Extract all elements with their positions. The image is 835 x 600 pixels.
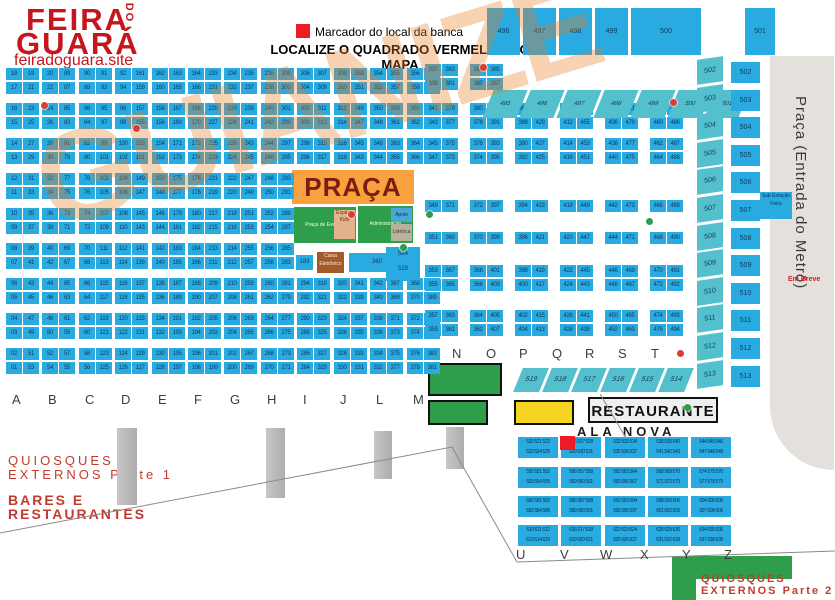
stall-460: 460 bbox=[650, 117, 666, 129]
stall-56: 56 bbox=[79, 362, 95, 374]
stall-318: 318 bbox=[334, 152, 350, 164]
stall-372: 372 bbox=[407, 313, 423, 325]
stall-331: 331 bbox=[351, 362, 367, 374]
stall-241: 241 bbox=[241, 117, 257, 129]
stall-449: 449 bbox=[577, 200, 593, 212]
stall-503: 503 bbox=[731, 90, 760, 111]
stall-104: 104 bbox=[115, 173, 131, 185]
stall-258: 258 bbox=[261, 257, 277, 269]
ala-nova-box: 544 545 546547 548 549 bbox=[691, 437, 731, 458]
stall-08: 08 bbox=[6, 243, 22, 255]
stall-471: 471 bbox=[622, 232, 638, 244]
pillar bbox=[446, 427, 464, 469]
stall-319: 319 bbox=[314, 278, 330, 290]
stall-203: 203 bbox=[205, 327, 221, 339]
stall-294: 294 bbox=[297, 278, 313, 290]
ala-nova-box-line: 631 632 633 bbox=[648, 535, 688, 545]
substation-box: Sub Estação Feira bbox=[760, 192, 792, 219]
stall-374: 374 bbox=[407, 327, 423, 339]
ala-nova-box: 532 533 534535 536 537 bbox=[605, 437, 645, 458]
column-letter-O: O bbox=[486, 346, 496, 361]
stall-49: 49 bbox=[23, 327, 39, 339]
column-letter-B: B bbox=[48, 392, 57, 407]
stall-463: 463 bbox=[622, 324, 638, 336]
stall-02: 02 bbox=[6, 348, 22, 360]
stall-302: 302 bbox=[297, 103, 313, 115]
stall-181: 181 bbox=[169, 222, 185, 234]
ala-nova-box-line: 574 575 576 bbox=[691, 467, 731, 477]
stall-153: 153 bbox=[132, 138, 148, 150]
stall-99: 99 bbox=[96, 138, 112, 150]
stall-224: 224 bbox=[224, 152, 240, 164]
stall-496: 496 bbox=[487, 8, 520, 55]
stall-349: 349 bbox=[351, 103, 367, 115]
pillar bbox=[117, 428, 137, 505]
stall-118: 118 bbox=[115, 292, 131, 304]
stall-187: 187 bbox=[169, 278, 185, 290]
stall-76: 76 bbox=[79, 187, 95, 199]
ala-nova-box: 604 605 606607 608 609 bbox=[691, 496, 731, 517]
quiosques2-line1: QUIOSQUES bbox=[701, 573, 786, 585]
stall-451: 451 bbox=[577, 152, 593, 164]
ala-nova-box-line: 547 548 549 bbox=[691, 447, 731, 457]
stall-309: 309 bbox=[314, 82, 330, 94]
stall-329: 329 bbox=[314, 362, 330, 374]
stall-64: 64 bbox=[79, 292, 95, 304]
stall-73: 73 bbox=[59, 208, 75, 220]
stall-490: 490 bbox=[667, 232, 683, 244]
stall-243: 243 bbox=[241, 138, 257, 150]
stall-422: 422 bbox=[560, 265, 576, 277]
column-letter-Q: Q bbox=[552, 346, 562, 361]
stall-335: 335 bbox=[351, 327, 367, 339]
stall-308: 308 bbox=[334, 68, 350, 80]
stall-345: 345 bbox=[351, 138, 367, 150]
stall-53: 53 bbox=[23, 362, 39, 374]
stall-420: 420 bbox=[560, 232, 576, 244]
stall-387: 387 bbox=[487, 78, 503, 90]
stall-199: 199 bbox=[205, 362, 221, 374]
stall-363: 363 bbox=[442, 310, 458, 322]
stall-57: 57 bbox=[59, 348, 75, 360]
stall-256: 256 bbox=[261, 243, 277, 255]
stall-321: 321 bbox=[314, 292, 330, 304]
stall-237: 237 bbox=[241, 82, 257, 94]
stall-15: 15 bbox=[6, 117, 22, 129]
column-letter-V: V bbox=[560, 547, 569, 562]
stall-305: 305 bbox=[278, 68, 294, 80]
stall-508: 508 bbox=[731, 228, 760, 249]
stall-265: 265 bbox=[241, 327, 257, 339]
stall-286: 286 bbox=[297, 348, 313, 360]
column-letter-P: P bbox=[519, 346, 528, 361]
stall-19: 19 bbox=[23, 68, 39, 80]
stall-327: 327 bbox=[314, 348, 330, 360]
stall-310: 310 bbox=[334, 82, 350, 94]
stall-38: 38 bbox=[42, 222, 58, 234]
stall-175: 175 bbox=[169, 173, 185, 185]
stall-135: 135 bbox=[132, 292, 148, 304]
stall-150: 150 bbox=[152, 173, 168, 185]
stall-117: 117 bbox=[96, 292, 112, 304]
green-block-small bbox=[428, 400, 488, 425]
stall-54: 54 bbox=[42, 362, 58, 374]
column-letter-N: N bbox=[452, 346, 461, 361]
ala-nova-box: 592 593 594595 596 597 bbox=[605, 496, 645, 517]
ala-nova-box-line: 562 563 564 bbox=[605, 467, 645, 477]
stall-412: 412 bbox=[560, 117, 576, 129]
stall-269: 269 bbox=[241, 362, 257, 374]
stall-strip-510: 510 bbox=[697, 277, 723, 306]
stall-130: 130 bbox=[152, 348, 168, 360]
stall-165: 165 bbox=[169, 82, 185, 94]
bares-line2: RESTAURANTES bbox=[8, 506, 146, 522]
stall-299: 299 bbox=[278, 117, 294, 129]
stall-395: 395 bbox=[487, 152, 503, 164]
stall-04: 04 bbox=[6, 313, 22, 325]
ala-nova-box-line: 538 539 540 bbox=[648, 437, 688, 447]
stall-394: 394 bbox=[515, 200, 531, 212]
stall-391: 391 bbox=[487, 117, 503, 129]
stall-65: 65 bbox=[59, 278, 75, 290]
stall-102: 102 bbox=[115, 152, 131, 164]
stall-336: 336 bbox=[370, 327, 386, 339]
stall-361: 361 bbox=[387, 117, 403, 129]
stall-355: 355 bbox=[387, 68, 403, 80]
stall-423: 423 bbox=[532, 200, 548, 212]
stall-43: 43 bbox=[23, 278, 39, 290]
stall-138: 138 bbox=[152, 278, 168, 290]
stall-122: 122 bbox=[115, 327, 131, 339]
stall-205: 205 bbox=[205, 313, 221, 325]
stall-247: 247 bbox=[241, 173, 257, 185]
stall-05: 05 bbox=[6, 292, 22, 304]
stall-142: 142 bbox=[152, 243, 168, 255]
stall-366: 366 bbox=[407, 152, 423, 164]
stall-322: 322 bbox=[334, 292, 350, 304]
stall-208: 208 bbox=[224, 292, 240, 304]
stall-418: 418 bbox=[560, 200, 576, 212]
stall-470: 470 bbox=[650, 265, 666, 277]
stall-352: 352 bbox=[370, 82, 386, 94]
stall-238: 238 bbox=[261, 82, 277, 94]
stall-266: 266 bbox=[261, 327, 277, 339]
stall-448: 448 bbox=[605, 279, 621, 291]
stall-95: 95 bbox=[96, 103, 112, 115]
stall-207: 207 bbox=[205, 292, 221, 304]
stall-190: 190 bbox=[188, 292, 204, 304]
stall-497: 497 bbox=[523, 8, 556, 55]
column-letter-E: E bbox=[158, 392, 167, 407]
stall-311: 311 bbox=[314, 103, 330, 115]
ala-nova-box-line: 544 545 546 bbox=[691, 437, 731, 447]
ala-nova-box-line: 637 638 639 bbox=[691, 535, 731, 545]
stall-strip-502: 502 bbox=[697, 56, 723, 85]
stall-234: 234 bbox=[224, 68, 240, 80]
stall-160: 160 bbox=[152, 82, 168, 94]
stall-368: 368 bbox=[407, 278, 423, 290]
stall-356: 356 bbox=[407, 68, 423, 80]
stall-63: 63 bbox=[59, 292, 75, 304]
stall-46: 46 bbox=[42, 292, 58, 304]
column-letter-I: I bbox=[303, 392, 307, 407]
stall-01: 01 bbox=[6, 362, 22, 374]
stall-396: 396 bbox=[515, 232, 531, 244]
stall-58: 58 bbox=[79, 348, 95, 360]
stall-68: 68 bbox=[79, 257, 95, 269]
ala-nova-box-line: 601 602 603 bbox=[648, 506, 688, 516]
stall-85: 85 bbox=[59, 103, 75, 115]
stall-111: 111 bbox=[96, 243, 112, 255]
stall-97: 97 bbox=[96, 117, 112, 129]
ala-nova-box-line: 634 635 636 bbox=[691, 525, 731, 535]
stall-229: 229 bbox=[205, 103, 221, 115]
stall-119: 119 bbox=[96, 313, 112, 325]
stall-228: 228 bbox=[224, 117, 240, 129]
stall-93: 93 bbox=[96, 82, 112, 94]
stall-88: 88 bbox=[79, 82, 95, 94]
stall-193: 193 bbox=[169, 327, 185, 339]
ala-nova-box-line: 523 524 525 bbox=[518, 447, 558, 457]
stall-342: 342 bbox=[370, 278, 386, 290]
metro-plaza-area: Praça (Entrada do Metrô) bbox=[770, 56, 834, 470]
stall-204: 204 bbox=[224, 327, 240, 339]
stall-166: 166 bbox=[188, 82, 204, 94]
stall-246: 246 bbox=[261, 152, 277, 164]
stall-445: 445 bbox=[577, 265, 593, 277]
stall-353: 353 bbox=[425, 265, 441, 277]
stall-378: 378 bbox=[470, 117, 486, 129]
stall-132: 132 bbox=[152, 327, 168, 339]
column-letter-X: X bbox=[640, 547, 649, 562]
stall-171: 171 bbox=[169, 138, 185, 150]
stall-436: 436 bbox=[605, 117, 621, 129]
stall-450: 450 bbox=[605, 310, 621, 322]
stall-359: 359 bbox=[425, 324, 441, 336]
stall-375: 375 bbox=[442, 138, 458, 150]
stall-137: 137 bbox=[132, 278, 148, 290]
stall-182: 182 bbox=[188, 222, 204, 234]
stall-216: 216 bbox=[224, 222, 240, 234]
stall-366: 366 bbox=[470, 279, 486, 291]
stall-41: 41 bbox=[23, 257, 39, 269]
stall-376: 376 bbox=[470, 138, 486, 150]
stall-192: 192 bbox=[188, 313, 204, 325]
stall-414: 414 bbox=[560, 138, 576, 150]
stall-452: 452 bbox=[605, 324, 621, 336]
stall-474: 474 bbox=[650, 310, 666, 322]
stall-80: 80 bbox=[79, 152, 95, 164]
stall-438: 438 bbox=[605, 138, 621, 150]
stall-283: 283 bbox=[278, 257, 294, 269]
stall-317: 317 bbox=[314, 152, 330, 164]
stall-110: 110 bbox=[115, 222, 131, 234]
stall-446: 446 bbox=[605, 265, 621, 277]
stall-112: 112 bbox=[115, 243, 131, 255]
stall-16: 16 bbox=[6, 103, 22, 115]
column-letter-D: D bbox=[121, 392, 130, 407]
stall-513: 513 bbox=[731, 366, 760, 387]
ala-nova-box-line: 583 584 585 bbox=[518, 506, 558, 516]
stall-81: 81 bbox=[59, 138, 75, 150]
stall-253: 253 bbox=[241, 222, 257, 234]
stall-146: 146 bbox=[152, 208, 168, 220]
stall-131: 131 bbox=[132, 327, 148, 339]
stall-303: 303 bbox=[278, 82, 294, 94]
stall-144: 144 bbox=[152, 222, 168, 234]
stall-120: 120 bbox=[115, 313, 131, 325]
stall-133: 133 bbox=[132, 313, 148, 325]
stall-185: 185 bbox=[169, 257, 185, 269]
stall-339: 339 bbox=[351, 292, 367, 304]
stall-341: 341 bbox=[351, 278, 367, 290]
stall-297: 297 bbox=[278, 138, 294, 150]
column-letter-J: J bbox=[340, 392, 347, 407]
stall-381: 381 bbox=[442, 78, 458, 90]
stall-291: 291 bbox=[278, 187, 294, 199]
stall-217: 217 bbox=[205, 208, 221, 220]
stall-304: 304 bbox=[297, 82, 313, 94]
stall-357: 357 bbox=[387, 82, 403, 94]
stall-307: 307 bbox=[314, 68, 330, 80]
stall-232: 232 bbox=[224, 82, 240, 94]
stall-509: 509 bbox=[731, 255, 760, 276]
stall-416: 416 bbox=[560, 152, 576, 164]
stall-372: 372 bbox=[470, 200, 486, 212]
ala-nova-box-line: 553 554 555 bbox=[518, 477, 558, 487]
stall-467: 467 bbox=[622, 279, 638, 291]
stall-61: 61 bbox=[59, 313, 75, 325]
restaurante-block: RESTAURANTE bbox=[588, 397, 718, 423]
stall-249: 249 bbox=[241, 187, 257, 199]
stall-161: 161 bbox=[132, 68, 148, 80]
stall-382: 382 bbox=[470, 78, 486, 90]
stall-90: 90 bbox=[79, 68, 95, 80]
stall-strip-514: 514 bbox=[658, 368, 694, 392]
quiosques2-green-corner bbox=[672, 579, 696, 600]
ala-nova-box-line: 559 560 561 bbox=[561, 477, 601, 487]
ala-nova-box-line: 571 572 573 bbox=[648, 477, 688, 487]
stall-124: 124 bbox=[115, 348, 131, 360]
ala-nova-box: 610 611 612613 614 615 bbox=[518, 525, 558, 546]
stall-183: 183 bbox=[169, 243, 185, 255]
stall-29: 29 bbox=[23, 152, 39, 164]
stall-225: 225 bbox=[205, 138, 221, 150]
stall-363: 363 bbox=[387, 138, 403, 150]
stall-50: 50 bbox=[42, 327, 58, 339]
ala-nova-box-line: 577 578 579 bbox=[691, 477, 731, 487]
stall-402: 402 bbox=[515, 310, 531, 322]
stall-404: 404 bbox=[515, 324, 531, 336]
stall-strip-504: 504 bbox=[697, 111, 723, 140]
stall-273: 273 bbox=[278, 348, 294, 360]
stall-333: 333 bbox=[351, 348, 367, 360]
stall-326: 326 bbox=[334, 327, 350, 339]
stall-376: 376 bbox=[407, 348, 423, 360]
stall-499: 499 bbox=[595, 8, 628, 55]
stall-507: 507 bbox=[731, 200, 760, 221]
stall-257: 257 bbox=[241, 257, 257, 269]
stall-325: 325 bbox=[314, 327, 330, 339]
stall-488: 488 bbox=[667, 152, 683, 164]
stall-206: 206 bbox=[224, 313, 240, 325]
stall-105: 105 bbox=[96, 187, 112, 199]
stall-292: 292 bbox=[297, 292, 313, 304]
stall-26: 26 bbox=[42, 117, 58, 129]
stall-477: 477 bbox=[622, 138, 638, 150]
stall-245: 245 bbox=[241, 152, 257, 164]
stall-75: 75 bbox=[59, 187, 75, 199]
stall-385: 385 bbox=[487, 64, 503, 76]
stall-492: 492 bbox=[667, 279, 683, 291]
ala-nova-box: 562 563 564565 566 567 bbox=[605, 467, 645, 488]
stall-170: 170 bbox=[188, 117, 204, 129]
stall-270: 270 bbox=[261, 362, 277, 374]
stall-21: 21 bbox=[23, 82, 39, 94]
stall-334: 334 bbox=[370, 348, 386, 360]
stall-397: 397 bbox=[487, 200, 503, 212]
poi-dot bbox=[677, 350, 684, 357]
stall-164: 164 bbox=[188, 68, 204, 80]
stall-180: 180 bbox=[188, 208, 204, 220]
stall-313: 313 bbox=[314, 117, 330, 129]
stall-240: 240 bbox=[261, 103, 277, 115]
stall-441: 441 bbox=[577, 310, 593, 322]
stall-367: 367 bbox=[442, 265, 458, 277]
ala-nova-box-line: 622 623 624 bbox=[605, 525, 645, 535]
stall-298: 298 bbox=[297, 138, 313, 150]
stall-210: 210 bbox=[224, 278, 240, 290]
stall-301: 301 bbox=[278, 103, 294, 115]
ala-nova-box-line: 610 611 612 bbox=[518, 525, 558, 535]
stall-427: 427 bbox=[532, 138, 548, 150]
stall-157: 157 bbox=[132, 103, 148, 115]
stall-109: 109 bbox=[96, 222, 112, 234]
ala-nova-box: 556 557 558559 560 561 bbox=[561, 467, 601, 488]
stall-35: 35 bbox=[23, 208, 39, 220]
stall-368: 368 bbox=[470, 265, 486, 277]
stall-255: 255 bbox=[241, 243, 257, 255]
stall-260: 260 bbox=[261, 278, 277, 290]
stall-09: 09 bbox=[6, 222, 22, 234]
stall-399: 399 bbox=[487, 232, 503, 244]
stall-370: 370 bbox=[407, 292, 423, 304]
stall-373: 373 bbox=[442, 152, 458, 164]
stall-360: 360 bbox=[407, 103, 423, 115]
stall-201: 201 bbox=[205, 348, 221, 360]
stall-373: 373 bbox=[387, 327, 403, 339]
stall-505: 505 bbox=[731, 145, 760, 166]
stall-212: 212 bbox=[224, 257, 240, 269]
pillar bbox=[374, 431, 392, 479]
stall-86: 86 bbox=[79, 103, 95, 115]
stall-196: 196 bbox=[188, 348, 204, 360]
stall-370: 370 bbox=[470, 232, 486, 244]
stall-254: 254 bbox=[261, 222, 277, 234]
stall-156: 156 bbox=[152, 117, 168, 129]
stall-44: 44 bbox=[42, 278, 58, 290]
stall-475: 475 bbox=[622, 152, 638, 164]
stall-343: 343 bbox=[351, 152, 367, 164]
stall-42: 42 bbox=[42, 257, 58, 269]
stall-25: 25 bbox=[23, 117, 39, 129]
stall-248: 248 bbox=[261, 173, 277, 185]
stall-328: 328 bbox=[334, 348, 350, 360]
stall-425: 425 bbox=[532, 152, 548, 164]
ala-nova-box-line: 568 569 570 bbox=[648, 467, 688, 477]
stall-22: 22 bbox=[42, 82, 58, 94]
ala-nova-box: 586 587 588589 590 591 bbox=[561, 496, 601, 517]
